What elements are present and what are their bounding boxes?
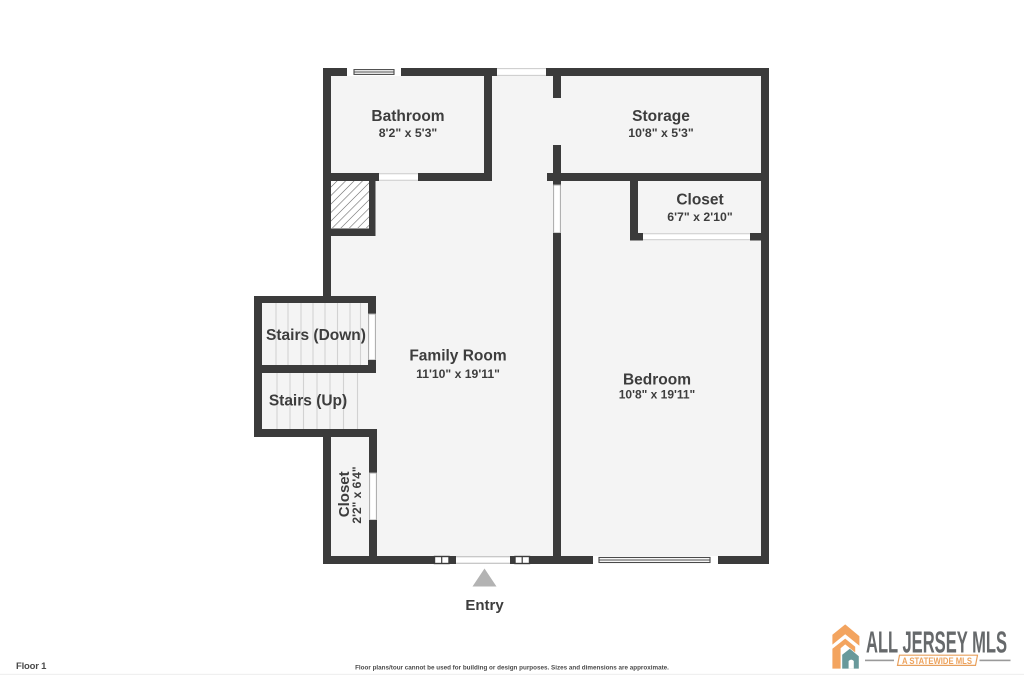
svg-text:10'8" x 19'11": 10'8" x 19'11"	[619, 388, 695, 402]
svg-text:Storage: Storage	[632, 108, 690, 125]
svg-text:2'2" x 6'4": 2'2" x 6'4"	[350, 466, 364, 523]
svg-text:Stairs (Down): Stairs (Down)	[266, 327, 366, 344]
svg-text:Closet: Closet	[676, 192, 723, 209]
svg-text:10'8" x 5'3": 10'8" x 5'3"	[628, 126, 694, 140]
svg-text:A STATEWIDE MLS: A STATEWIDE MLS	[902, 656, 972, 667]
svg-text:Bedroom: Bedroom	[623, 372, 691, 389]
svg-text:Floor plans/tour cannot be use: Floor plans/tour cannot be used for buil…	[355, 664, 669, 671]
svg-text:Stairs (Up): Stairs (Up)	[269, 393, 347, 410]
svg-text:Bathroom: Bathroom	[371, 108, 444, 125]
svg-text:8'2" x 5'3": 8'2" x 5'3"	[379, 126, 438, 140]
svg-text:6'7" x 2'10": 6'7" x 2'10"	[667, 210, 733, 224]
svg-text:11'10" x 19'11": 11'10" x 19'11"	[416, 367, 500, 381]
svg-text:Entry: Entry	[465, 597, 504, 614]
svg-text:Floor 1: Floor 1	[16, 661, 47, 672]
svg-text:ALL JERSEY MLS: ALL JERSEY MLS	[866, 625, 1007, 660]
svg-text:Family Room: Family Room	[409, 348, 506, 365]
